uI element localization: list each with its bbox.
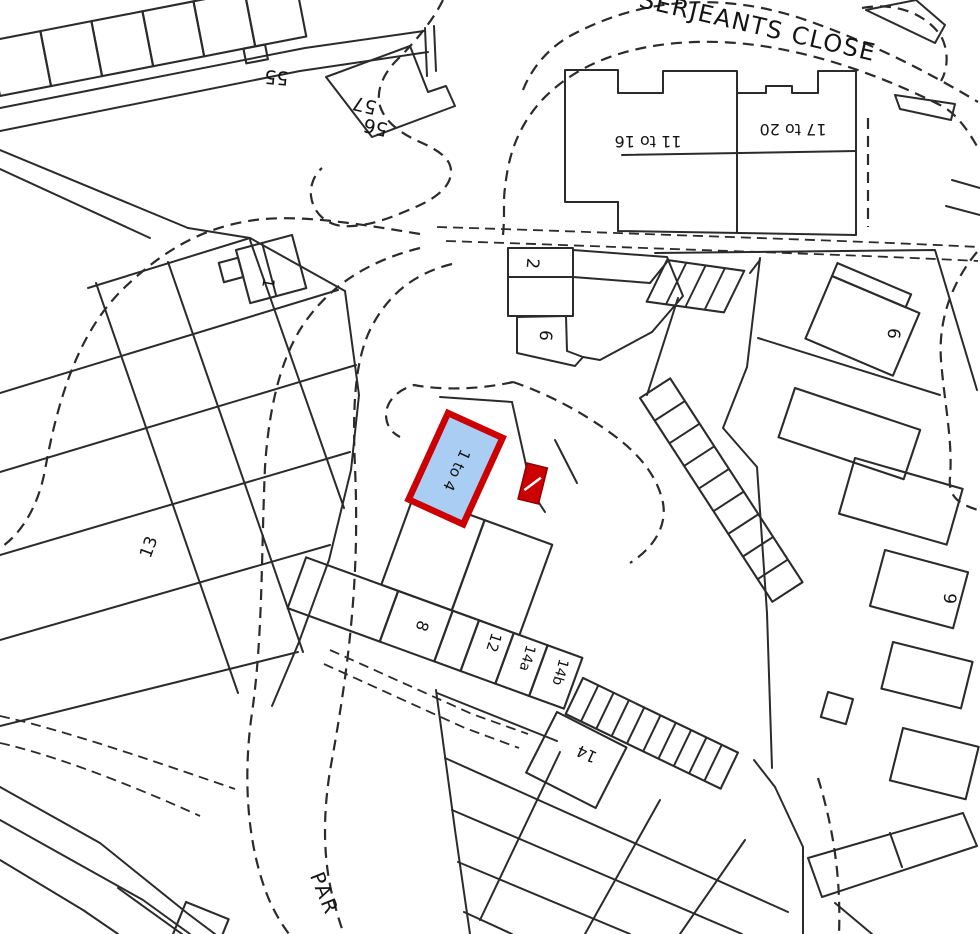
road-edge-nw-1 xyxy=(0,150,188,228)
plot-label-plot-55: 55 xyxy=(263,65,289,89)
plot-label-plot-57: 57 xyxy=(350,91,379,118)
estate14-row xyxy=(445,758,788,912)
west-estate-row xyxy=(0,290,338,393)
building-ne-of-comb-b xyxy=(779,388,921,479)
building-mid-right xyxy=(839,458,963,545)
road-left-edge-lower xyxy=(0,743,200,816)
west-estate-column xyxy=(96,283,238,693)
plot-label-plot-12: 12 xyxy=(482,631,505,655)
plot-label-plot-2: 2 xyxy=(522,257,543,270)
boundary-continuation xyxy=(767,613,772,768)
strip-bottom-right xyxy=(808,813,977,897)
partial-building-right-edge xyxy=(952,180,980,188)
estate14-row xyxy=(464,912,512,934)
sw-parcel-line xyxy=(118,888,182,934)
footpath-double-dash-upper xyxy=(330,650,528,734)
footpath-double-dash-lower xyxy=(324,664,519,748)
parcel-line xyxy=(583,332,652,360)
estate14-right-edge xyxy=(775,787,803,934)
plot-label-plot-13: 13 xyxy=(136,534,162,561)
west-estate-east-edge xyxy=(272,291,359,706)
building-right-1 xyxy=(881,642,972,708)
street-label-serjeants-close: SERJEANTS CLOSE xyxy=(637,0,879,67)
parcel-line xyxy=(555,440,577,483)
west-estate-row xyxy=(0,652,298,726)
map-canvas: SERJEANTS CLOSEPAR5557561132611 to 1617 … xyxy=(0,0,980,934)
road-corridor-east-edge xyxy=(325,264,452,934)
house-bottom-left xyxy=(173,902,229,934)
parcel-below-2 xyxy=(508,277,573,316)
plot-label-plot-56: 56 xyxy=(361,113,390,140)
plot-label-plot-17-20: 17 to 20 xyxy=(760,120,827,139)
estate14-west-edge xyxy=(436,690,470,934)
plot-label-plot-14a: 14a xyxy=(516,643,539,673)
road-corridor-west-edge xyxy=(247,248,420,934)
estate14-divider xyxy=(585,800,660,934)
house-9 xyxy=(870,550,968,628)
estate14-divider xyxy=(680,840,745,934)
highlight-plot-edge-top xyxy=(440,397,512,402)
boundary-hairpin-around-56-57 xyxy=(311,0,451,226)
fence-mid-right xyxy=(758,338,940,395)
plot-label-plot-14b: 14b xyxy=(548,657,571,687)
highlighted-property-group xyxy=(409,413,548,524)
map-labels: SERJEANTS CLOSEPAR5557561132611 to 1617 … xyxy=(136,0,959,918)
plot-label-plot-6-mid: 6 xyxy=(535,329,556,342)
gate-post-1 xyxy=(425,28,427,76)
strip-exit-line xyxy=(835,903,872,934)
plot-label-plot-9: 9 xyxy=(939,592,960,605)
parcel-line xyxy=(573,277,650,283)
plot-label-plot-8: 8 xyxy=(411,618,432,634)
building-sliver-top-right xyxy=(895,95,955,120)
street-label-park-street-partial: PAR xyxy=(305,868,344,918)
plot-label-plot-11-16: 11 to 16 xyxy=(615,132,682,151)
plot-label-plot-6-right: 6 xyxy=(883,327,904,340)
building-right-2 xyxy=(890,728,979,799)
garage-comb-c xyxy=(566,678,738,789)
estate14-divider xyxy=(480,752,560,920)
os-location-plan: SERJEANTS CLOSEPAR5557561132611 to 1617 … xyxy=(0,0,980,934)
garage-comb-b xyxy=(640,378,803,601)
strip-divider xyxy=(890,833,902,867)
building-top-right xyxy=(866,0,945,43)
plot-label-plot-1: 1 xyxy=(258,276,278,289)
outbuilding-square xyxy=(821,692,853,724)
highlighted-outbuilding xyxy=(518,463,547,504)
plot-label-plot-14: 14 xyxy=(573,741,599,767)
sw-road-edge-3 xyxy=(0,860,118,934)
west-estate-row xyxy=(0,365,356,472)
boundary-right-of-14-estate xyxy=(818,778,839,934)
parcel-line xyxy=(647,298,678,395)
west-estate-row xyxy=(0,452,350,555)
west-estate-row xyxy=(0,545,330,640)
partial-building-right-edge xyxy=(946,206,980,215)
gate-post-2 xyxy=(434,26,436,71)
